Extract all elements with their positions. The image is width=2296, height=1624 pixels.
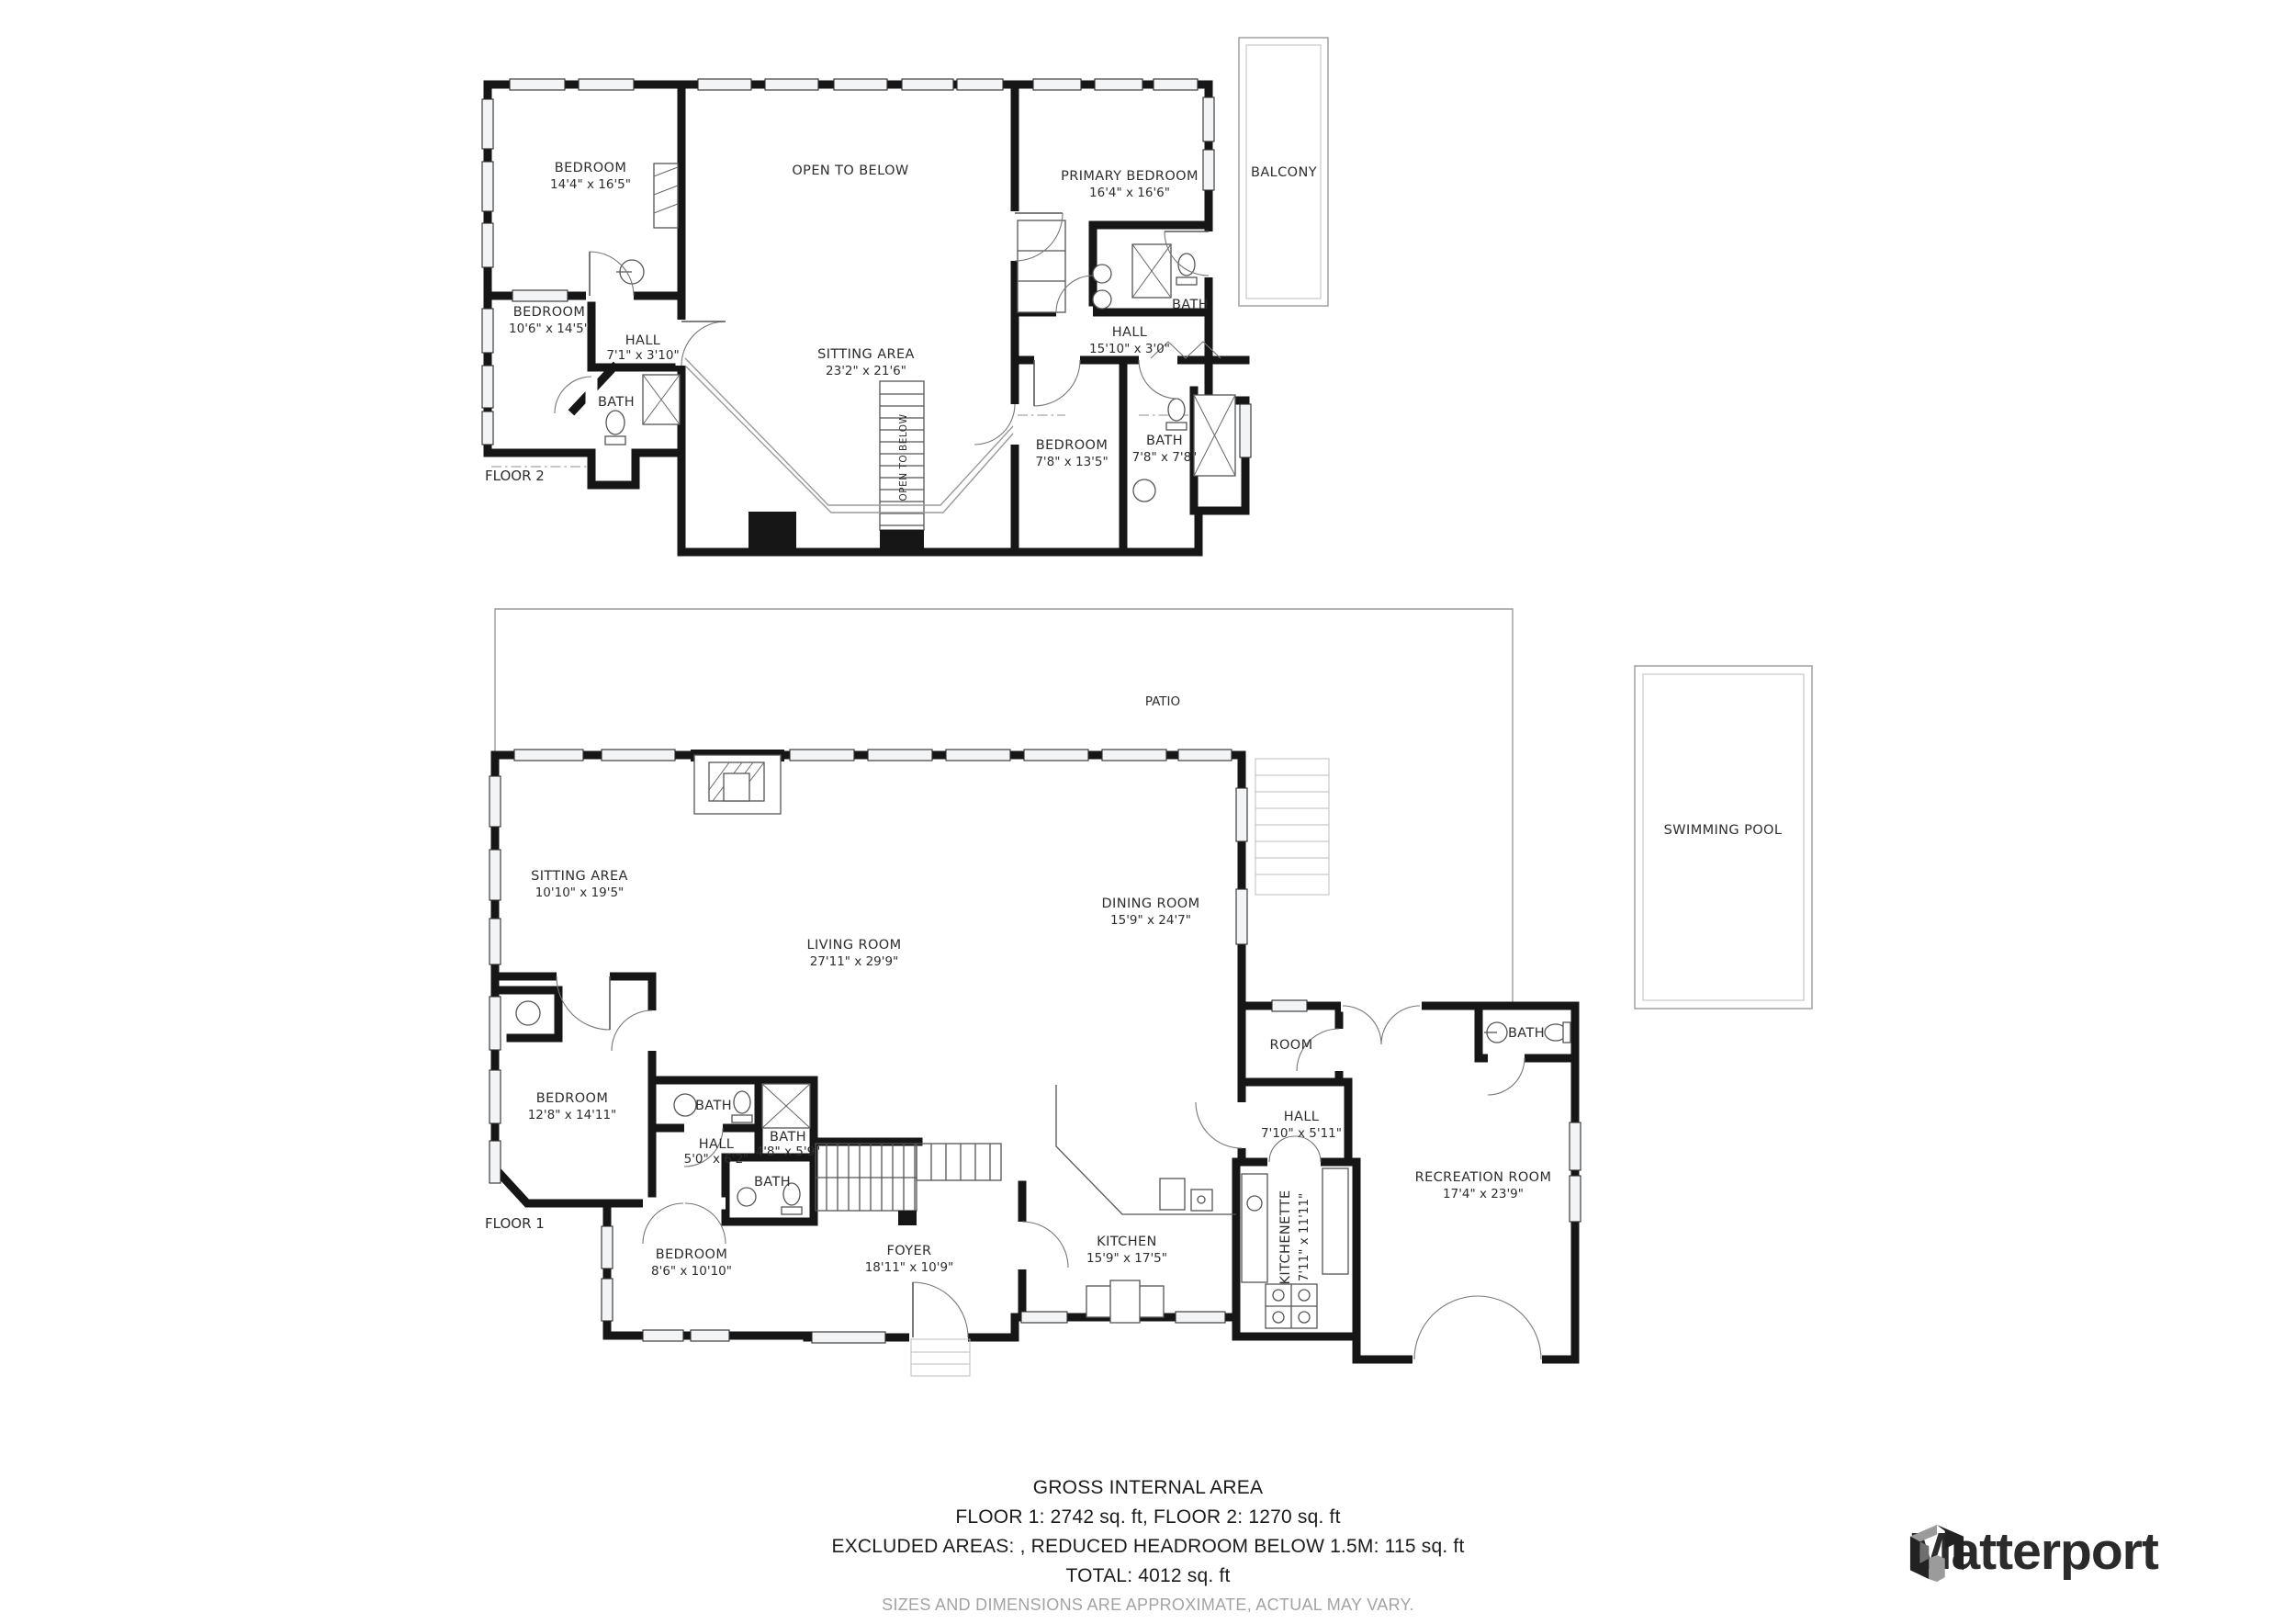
room-label-f2-bedroom1: BEDROOM (555, 161, 627, 175)
floor2-outer-walls (488, 85, 1245, 552)
floor1-label: FLOOR 1 (485, 1215, 545, 1232)
room-label-f2-hall-right: HALL (1112, 325, 1148, 340)
room-label-f2-open-below: OPEN TO BELOW (792, 164, 908, 178)
room-dims-f2-hall-right: 15'10" x 3'0" (1089, 342, 1170, 356)
room-label-f2-bedroom2: BEDROOM (513, 305, 586, 320)
floorplan-canvas: BEDROOM 14'4" x 16'5" OPEN TO BELOW PRIM… (0, 0, 2296, 1624)
room-label-hall-e: HALL (1284, 1110, 1320, 1124)
room-dims-f1-sitting: 10'10" x 19'5" (535, 885, 625, 900)
room-label-f1-sitting: SITTING AREA (531, 869, 628, 884)
room-label-bath-c: BATH (754, 1175, 791, 1190)
room-dims-f2-hall: 7'1" x 3'10" (606, 348, 679, 363)
room-label-bath-b: BATH (770, 1130, 806, 1145)
floor1-plan: SWIMMING POOL (485, 609, 1812, 1376)
room-label-hall-w: HALL (699, 1137, 735, 1152)
room-label-f2-bath-primary: BATH (1172, 298, 1209, 312)
floor2-label: FLOOR 2 (485, 468, 545, 484)
swimming-pool: SWIMMING POOL (1635, 666, 1812, 1009)
room-label-kitchenette: KITCHENETTE (1278, 1190, 1293, 1284)
floor2-chimney (748, 512, 796, 552)
room-dims-f2-bedroom3: 7'8" x 13'5" (1035, 455, 1108, 469)
floor2-plan: BEDROOM 14'4" x 16'5" OPEN TO BELOW PRIM… (482, 38, 1328, 552)
room-label-f2-bath-left: BATH (598, 395, 635, 410)
room-dims-living: 27'11" x 29'9" (810, 954, 899, 969)
room-dims-kitchenette: 7'11" x 11'11" (1297, 1193, 1311, 1282)
room-label-dining: DINING ROOM (1101, 897, 1199, 911)
room-dims-f2-bedroom1: 14'4" x 16'5" (550, 177, 631, 192)
room-label-pool: SWIMMING POOL (1664, 823, 1783, 838)
room-label-f2-balcony: BALCONY (1251, 165, 1317, 180)
room-label-f2-bedroom3: BEDROOM (1036, 438, 1109, 453)
room-dims-dining: 15'9" x 24'7" (1110, 913, 1191, 928)
room-dims-kitchen: 15'9" x 17'5" (1086, 1251, 1167, 1266)
room-label-patio: PATIO (1145, 694, 1180, 709)
floor1-fireplace (694, 755, 781, 814)
room-label-bedroom-w: BEDROOM (536, 1091, 609, 1106)
room-label-recreation: RECREATION ROOM (1415, 1170, 1552, 1185)
room-label-f2-hall: HALL (625, 333, 661, 348)
room-label-bedroom-s: BEDROOM (656, 1247, 728, 1262)
room-dims-bath-b: 4'8" x 5'9" (756, 1145, 821, 1159)
room-label-room: ROOM (1269, 1038, 1312, 1053)
room-label-foyer: FOYER (886, 1244, 931, 1258)
room-dims-f2-primary: 16'4" x 16'6" (1089, 186, 1170, 200)
room-dims-hall-e: 7'10" x 5'11" (1261, 1126, 1342, 1141)
matterport-icon (1908, 1521, 1965, 1584)
gross-internal-area-heading: GROSS INTERNAL AREA (0, 1473, 2296, 1503)
room-dims-f2-bath-right: 7'8" x 7'8" (1132, 450, 1198, 465)
room-dims-bedroom-s: 8'6" x 10'10" (651, 1264, 732, 1279)
room-label-living: LIVING ROOM (806, 938, 901, 953)
floor1-entry-porch (911, 1339, 970, 1376)
room-label-f2-bath-right: BATH (1146, 434, 1183, 448)
room-label-bath-a: BATH (695, 1099, 732, 1113)
matterport-logo: Matterport (1908, 1521, 2158, 1582)
floor2-stairwell-label: OPEN TO BELOW (898, 413, 909, 501)
room-dims-recreation: 17'4" x 23'9" (1443, 1187, 1524, 1201)
disclaimer-text: SIZES AND DIMENSIONS ARE APPROXIMATE, AC… (0, 1591, 2296, 1618)
room-label-kitchen: KITCHEN (1097, 1235, 1157, 1249)
room-label-f2-sitting: SITTING AREA (817, 347, 915, 362)
room-dims-foyer: 18'11" x 10'9" (865, 1260, 954, 1275)
room-dims-bedroom-w: 12'8" x 14'11" (528, 1108, 617, 1122)
room-dims-hall-w: 5'0" x 6'2" (684, 1152, 749, 1167)
room-label-f2-primary: PRIMARY BEDROOM (1061, 169, 1199, 184)
room-dims-f2-bedroom2: 10'6" x 14'5" (509, 321, 590, 336)
room-dims-f2-sitting: 23'2" x 21'6" (826, 364, 906, 378)
room-label-bath-ne: BATH (1508, 1026, 1545, 1041)
